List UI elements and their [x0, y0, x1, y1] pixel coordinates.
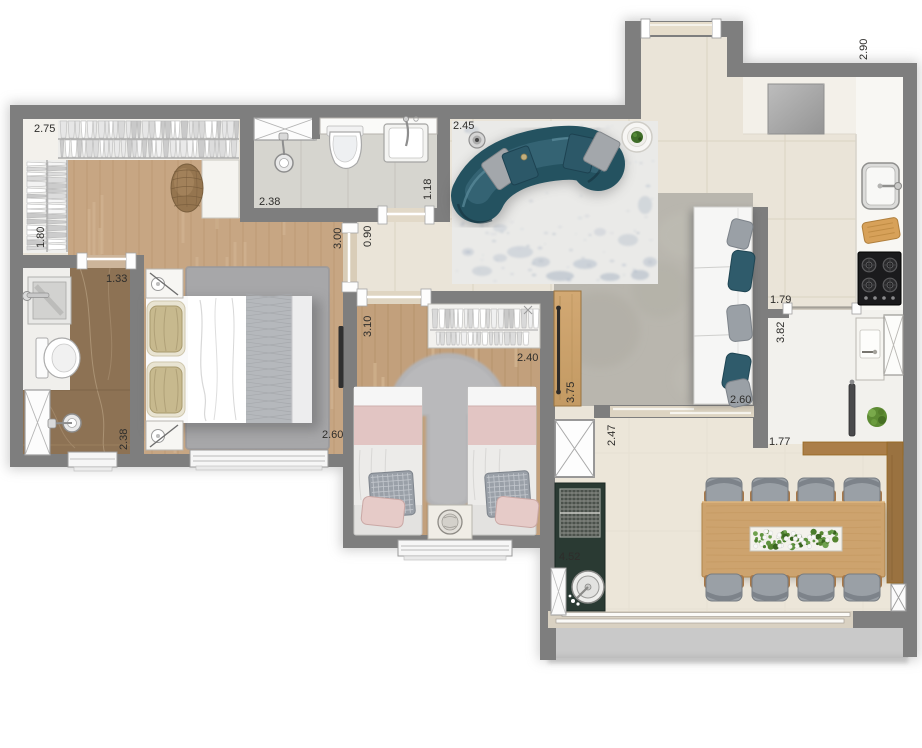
svg-text:3.82: 3.82 [775, 322, 787, 343]
svg-text:1.80: 1.80 [35, 227, 47, 248]
svg-text:3.10: 3.10 [362, 316, 374, 337]
svg-text:4.52: 4.52 [559, 551, 580, 563]
svg-text:0.90: 0.90 [362, 226, 374, 247]
svg-text:2.60: 2.60 [730, 394, 751, 406]
svg-text:2.38: 2.38 [118, 429, 130, 450]
svg-text:2.38: 2.38 [259, 196, 280, 208]
svg-text:2.40: 2.40 [517, 352, 538, 364]
svg-text:2.60: 2.60 [322, 429, 343, 441]
svg-text:2.90: 2.90 [858, 39, 870, 60]
svg-text:3.00: 3.00 [332, 228, 344, 249]
svg-text:1.33: 1.33 [106, 273, 127, 285]
svg-text:1.77: 1.77 [769, 436, 790, 448]
svg-text:3.75: 3.75 [565, 382, 577, 403]
svg-text:2.47: 2.47 [606, 425, 618, 446]
svg-text:2.45: 2.45 [453, 120, 474, 132]
svg-text:2.75: 2.75 [34, 123, 55, 135]
svg-text:1.18: 1.18 [422, 179, 434, 200]
svg-text:1.79: 1.79 [770, 294, 791, 306]
